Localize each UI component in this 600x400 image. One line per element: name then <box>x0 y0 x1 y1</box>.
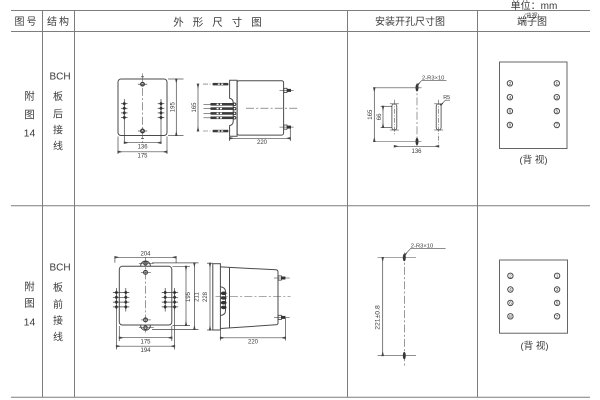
svg-text:175: 175 <box>140 340 151 346</box>
svg-text:195: 195 <box>171 102 177 113</box>
svg-text:175: 175 <box>137 154 148 160</box>
svg-text:附: 附 <box>24 280 35 293</box>
svg-text:接: 接 <box>53 124 63 137</box>
svg-text:8: 8 <box>509 314 512 320</box>
svg-text:4: 4 <box>509 95 512 101</box>
svg-text:194: 194 <box>140 348 151 354</box>
svg-text:4: 4 <box>509 287 512 293</box>
svg-text:(背视): (背视) <box>524 12 539 20</box>
svg-text:图号: 图号 <box>15 16 39 28</box>
svg-text:8: 8 <box>509 123 512 129</box>
svg-text:前: 前 <box>53 298 63 311</box>
svg-text:BCH: BCH <box>49 263 70 274</box>
svg-text:图: 图 <box>24 109 35 121</box>
svg-text:R5: R5 <box>443 95 450 101</box>
svg-text:外形尺寸图: 外形尺寸图 <box>173 16 271 29</box>
svg-text:165: 165 <box>192 102 198 113</box>
svg-text:板: 板 <box>53 281 63 294</box>
svg-text:136: 136 <box>411 149 422 155</box>
svg-text:195: 195 <box>186 291 192 302</box>
svg-text:线: 线 <box>53 331 63 344</box>
svg-text:2: 2 <box>509 81 512 87</box>
svg-text:3: 3 <box>555 95 558 101</box>
svg-text:1: 1 <box>555 81 558 87</box>
svg-text:BCH: BCH <box>49 72 70 83</box>
svg-text:165: 165 <box>368 109 374 120</box>
svg-text:(背 视): (背 视) <box>521 340 549 352</box>
svg-text:14: 14 <box>24 317 36 329</box>
svg-text:板: 板 <box>53 90 63 103</box>
svg-text:(背 视): (背 视) <box>520 154 548 166</box>
svg-text:204: 204 <box>140 252 151 258</box>
svg-text:2-R3×10: 2-R3×10 <box>422 75 444 81</box>
svg-text:安装开孔尺寸图: 安装开孔尺寸图 <box>375 15 445 28</box>
svg-text:6: 6 <box>509 301 512 307</box>
svg-text:5: 5 <box>556 301 559 307</box>
svg-text:3: 3 <box>556 287 559 293</box>
svg-text:220: 220 <box>257 140 268 146</box>
svg-text:228: 228 <box>203 291 209 302</box>
svg-text:附: 附 <box>24 90 35 103</box>
svg-text:5: 5 <box>555 109 558 115</box>
svg-text:14: 14 <box>24 128 36 140</box>
svg-text:图: 图 <box>24 298 35 310</box>
svg-text:220: 220 <box>248 340 259 346</box>
svg-text:1: 1 <box>556 273 559 279</box>
svg-text:后: 后 <box>53 109 63 121</box>
svg-text:2-R3×10: 2-R3×10 <box>411 243 433 249</box>
svg-text:2: 2 <box>509 273 512 279</box>
svg-text:136: 136 <box>138 145 149 151</box>
svg-text:7: 7 <box>555 123 558 129</box>
svg-text:线: 线 <box>53 140 63 153</box>
svg-text:66: 66 <box>377 113 383 120</box>
svg-text:221±0.8: 221±0.8 <box>374 305 381 330</box>
svg-text:结构: 结构 <box>47 15 71 28</box>
svg-text:7: 7 <box>556 314 559 320</box>
svg-text:接: 接 <box>53 314 63 327</box>
svg-text:211: 211 <box>194 292 200 302</box>
svg-text:6: 6 <box>509 109 512 115</box>
